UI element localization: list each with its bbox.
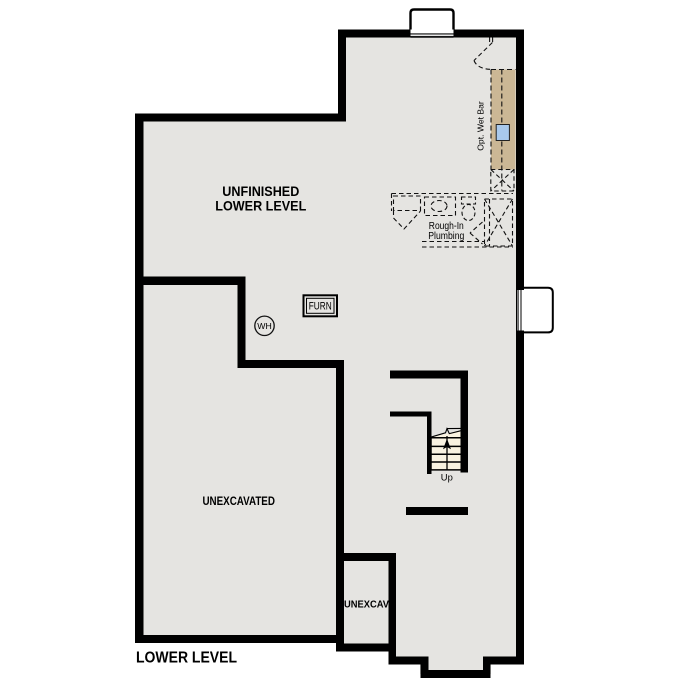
svg-text:FURN: FURN [309, 301, 332, 313]
svg-text:WH: WH [257, 322, 272, 331]
svg-text:UNEXCAVATED: UNEXCAVATED [202, 495, 275, 508]
svg-text:Plumbing: Plumbing [428, 231, 464, 242]
svg-text:Up: Up [441, 472, 453, 483]
svg-text:Opt. Wet Bar: Opt. Wet Bar [476, 101, 486, 151]
svg-text:LOWER LEVEL: LOWER LEVEL [215, 198, 306, 214]
svg-text:UNEXCAV: UNEXCAV [344, 599, 389, 610]
svg-text:LOWER LEVEL: LOWER LEVEL [136, 649, 237, 666]
svg-text:UNFINISHED: UNFINISHED [222, 183, 299, 199]
